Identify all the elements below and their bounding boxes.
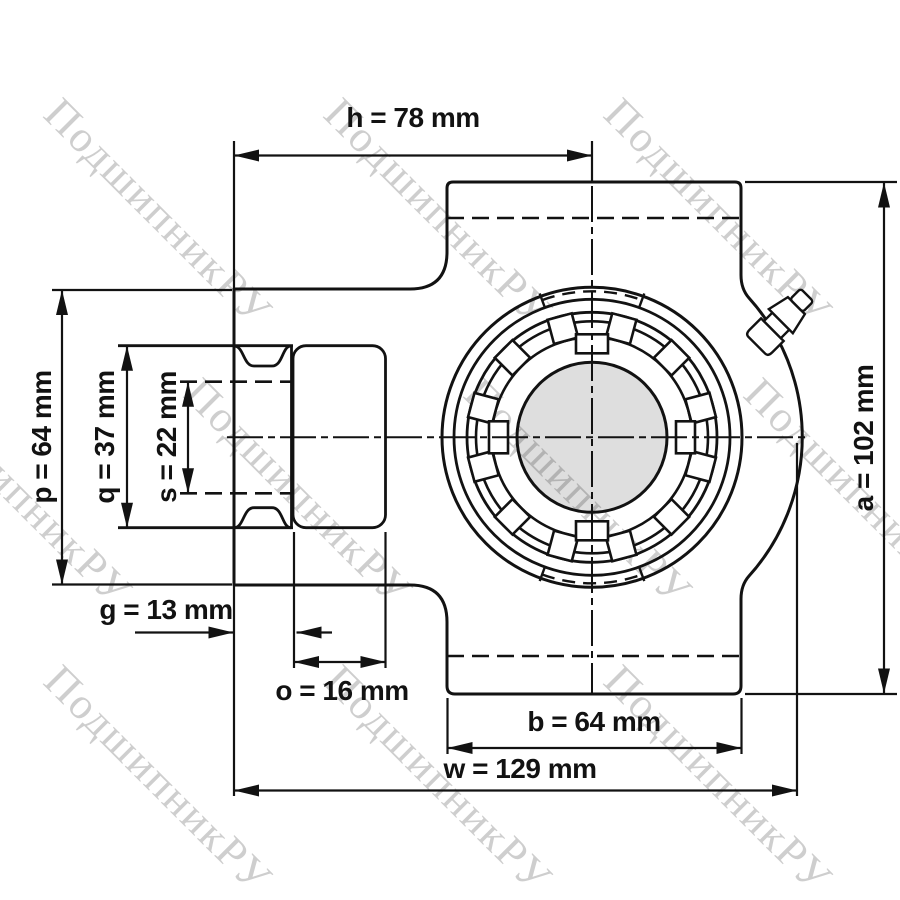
dim-label-h: h = 78 mm bbox=[346, 104, 479, 132]
dim-label-o: o = 16 mm bbox=[275, 677, 408, 705]
dim-label-w: w = 129 mm bbox=[444, 755, 597, 783]
drawing-canvas: ПодшипникРУ ПодшипникРУ ПодшипникРУ Подш… bbox=[0, 0, 900, 900]
dim-label-s: s = 22 mm bbox=[153, 371, 181, 503]
dim-label-g: g = 13 mm bbox=[99, 596, 232, 624]
dim-label-b: b = 64 mm bbox=[527, 708, 660, 736]
dimension-labels: h = 78 mm p = 64 mm q = 37 mm s = 22 mm … bbox=[0, 0, 900, 900]
dim-label-q: q = 37 mm bbox=[91, 370, 119, 503]
dim-label-a: a = 102 mm bbox=[850, 365, 878, 512]
dim-label-p: p = 64 mm bbox=[28, 370, 56, 503]
